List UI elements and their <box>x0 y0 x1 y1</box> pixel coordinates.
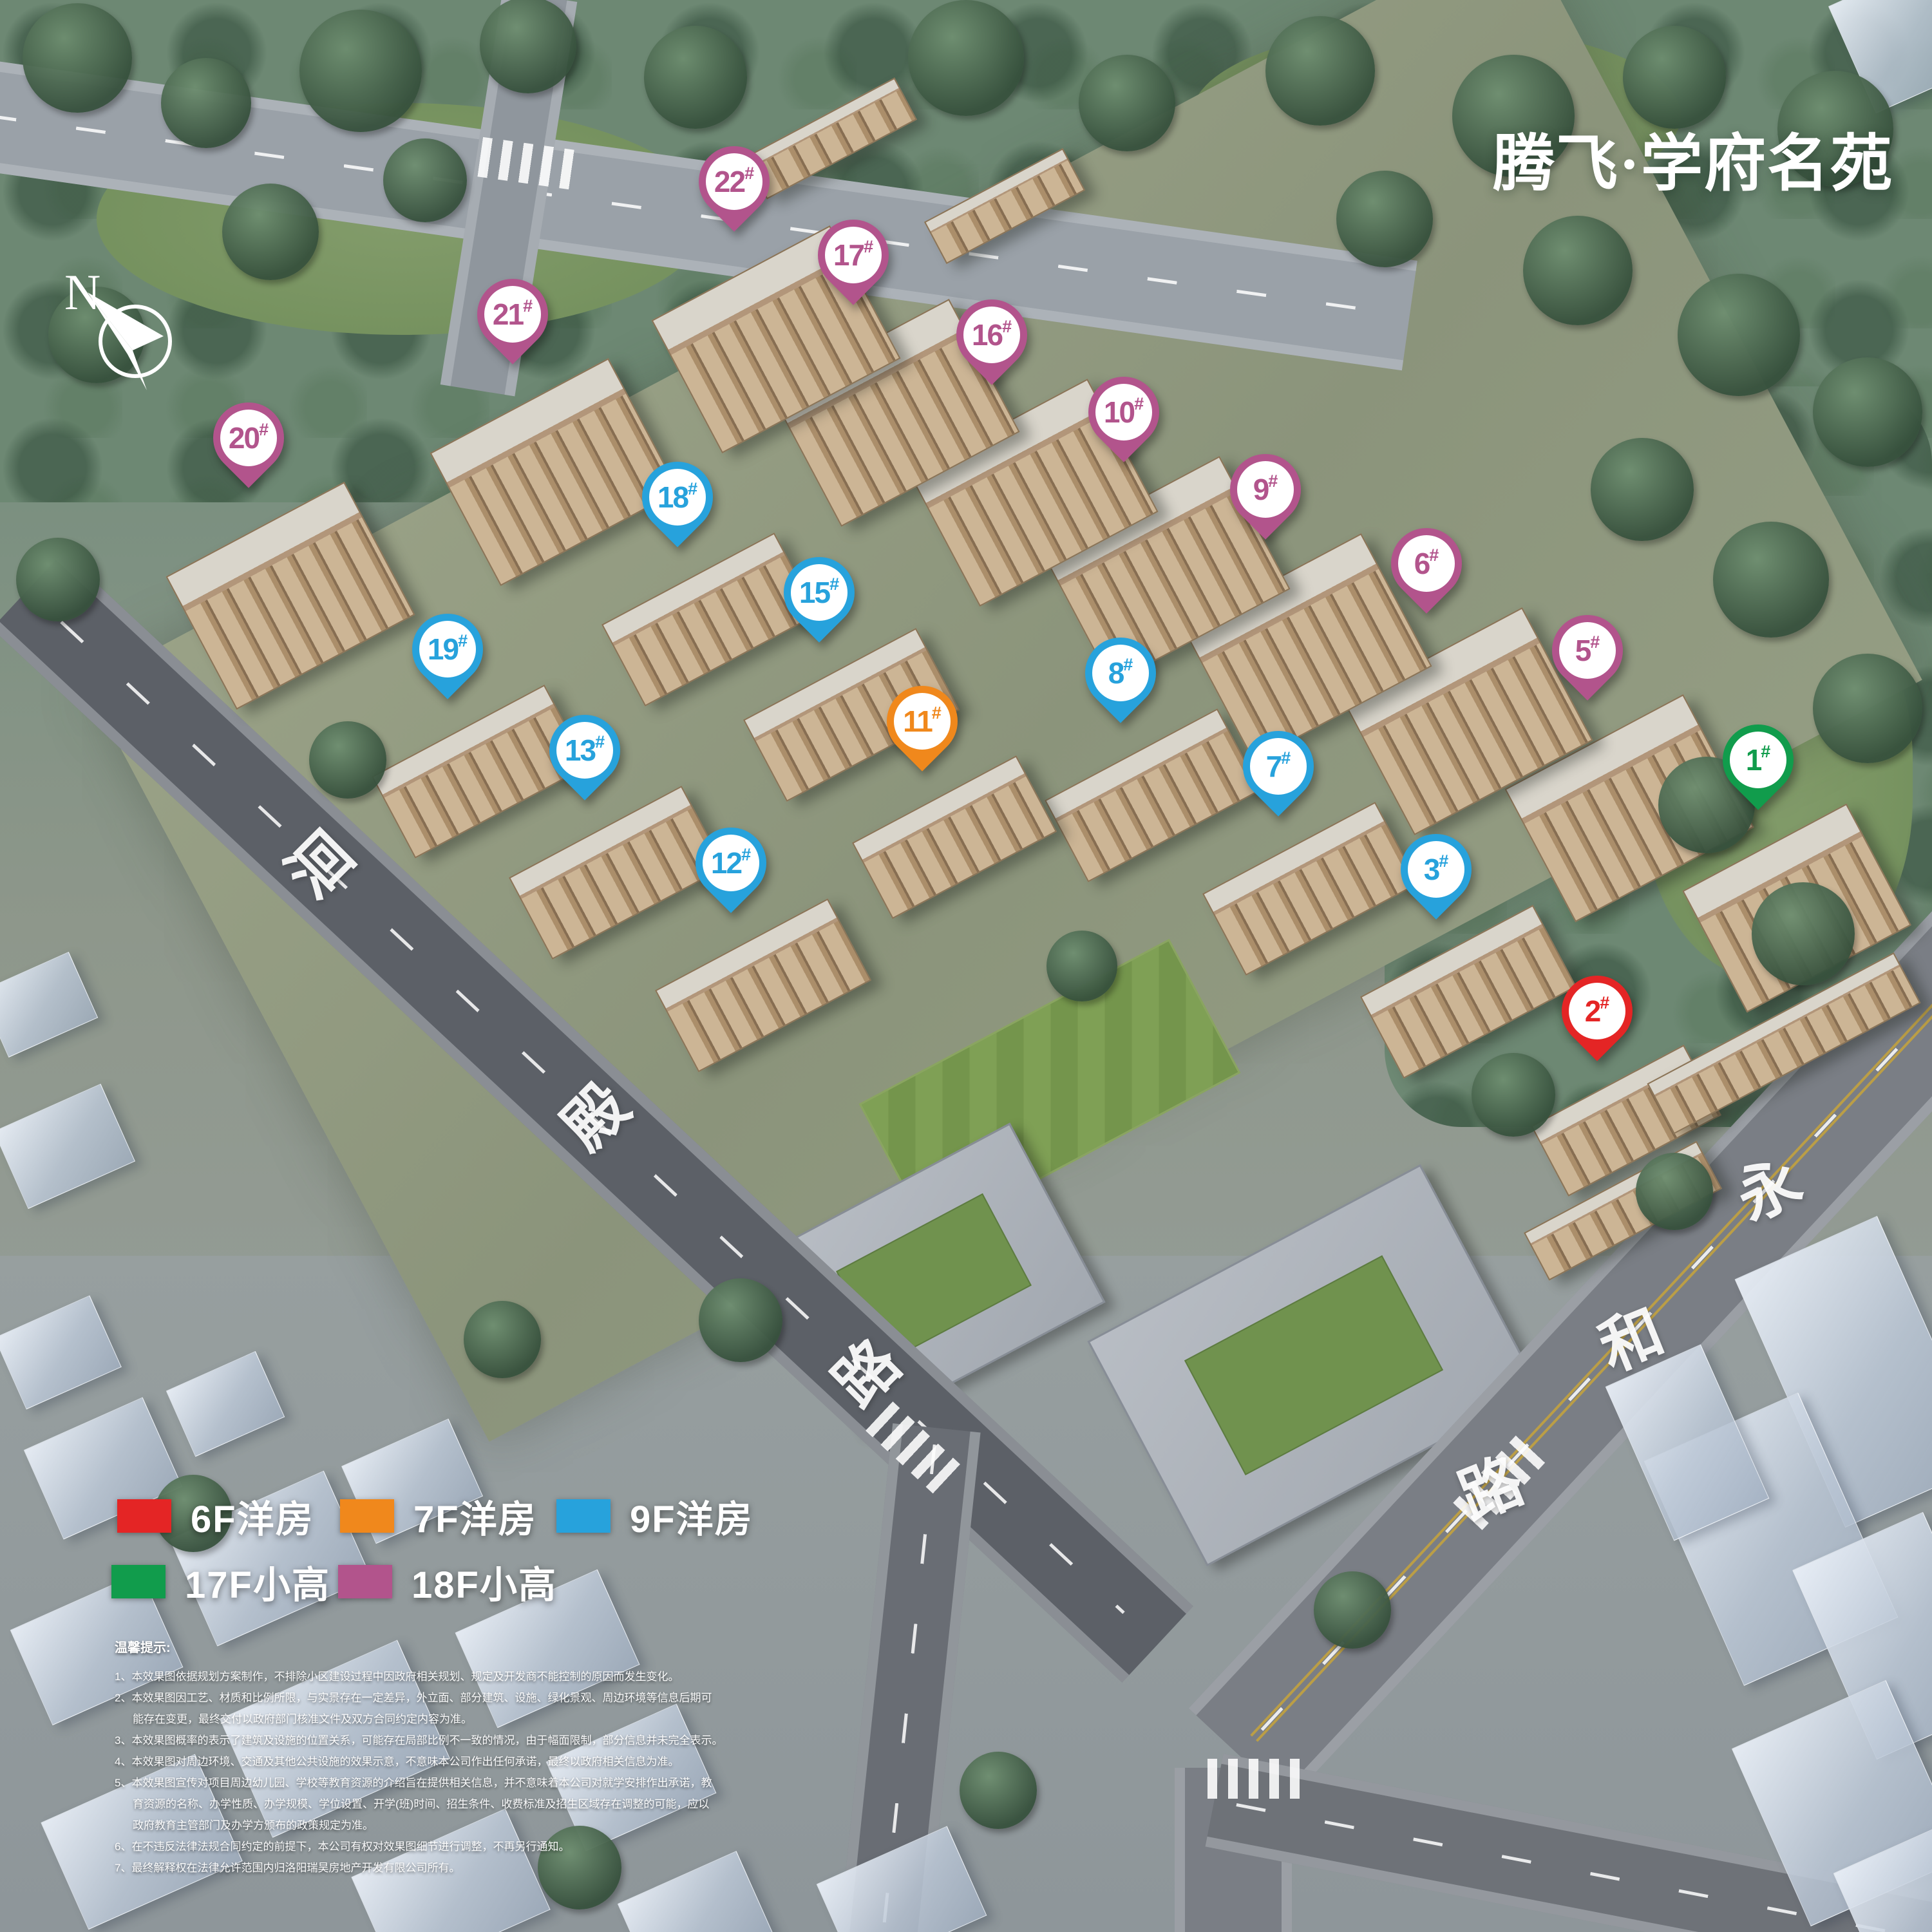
legend-item-18F小高: 18F小高 <box>338 1555 557 1609</box>
tree <box>1813 654 1922 763</box>
tree <box>644 26 747 129</box>
pin-label: 5# <box>1559 622 1616 679</box>
pin-label: 6# <box>1398 535 1455 592</box>
building-pin-3[interactable]: 3# <box>1401 834 1472 905</box>
disclaimer-line: 5、本效果图宣传对项目周边幼儿园、学校等教育资源的介绍旨在提供相关信息，并不意味… <box>115 1772 723 1794</box>
legend-item-9F洋房: 9F洋房 <box>556 1489 753 1543</box>
legend-label: 18F小高 <box>412 1555 557 1609</box>
tree <box>1336 171 1433 267</box>
legend-swatch <box>111 1565 166 1598</box>
tree <box>960 1752 1037 1829</box>
tree <box>1713 522 1829 638</box>
disclaimer-lines: 1、本效果图依据规划方案制作，不排除小区建设过程中因政府相关规划、规定及开发商不… <box>115 1666 723 1879</box>
pin-label: 22# <box>706 153 762 210</box>
pin-label: 3# <box>1408 841 1464 898</box>
tree <box>464 1301 541 1378</box>
tree <box>1813 357 1922 467</box>
tree <box>1314 1571 1391 1649</box>
pin-label: 21# <box>484 286 541 343</box>
disclaimer-line: 7、最终解释权在法律允许范围内归洛阳瑞昊房地产开发有限公司所有。 <box>115 1857 723 1879</box>
pin-label: 17# <box>825 227 882 283</box>
legend-label: 7F洋房 <box>413 1489 537 1543</box>
legend-swatch <box>556 1499 611 1533</box>
pin-label: 1# <box>1730 732 1786 788</box>
building-pin-21[interactable]: 21# <box>477 279 548 350</box>
building-pin-17[interactable]: 17# <box>818 220 889 290</box>
tree <box>480 0 576 93</box>
pin-label: 12# <box>703 835 759 891</box>
tree <box>908 0 1024 116</box>
disclaimer-line: 1、本效果图依据规划方案制作，不排除小区建设过程中因政府相关规划、规定及开发商不… <box>115 1666 723 1687</box>
compass: N <box>45 252 206 417</box>
building-pin-16[interactable]: 16# <box>956 299 1027 370</box>
disclaimer-line: 4、本效果图对周边环境、交通及其他公共设施的效果示意，不意味本公司作出任何承诺，… <box>115 1751 723 1772</box>
building-pin-19[interactable]: 19# <box>412 614 483 685</box>
building-pin-8[interactable]: 8# <box>1085 638 1156 708</box>
tree <box>309 721 386 799</box>
building-pin-11[interactable]: 11# <box>887 686 958 757</box>
masterplan-rendering: 洄殿路永和路 1#2#3#5#6#7#8#9#10#11#12#13#15#16… <box>0 0 1932 1932</box>
disclaimer-line: 2、本效果图因工艺、材质和比例所限，与实景存在一定差异，外立面、部分建筑、设施、… <box>115 1687 723 1709</box>
crosswalk <box>1207 1759 1304 1799</box>
building-pin-7[interactable]: 7# <box>1243 731 1314 802</box>
tree <box>1079 55 1175 151</box>
pin-label: 15# <box>791 564 848 621</box>
tree <box>299 10 422 132</box>
pin-label: 9# <box>1237 461 1294 518</box>
building-pin-22[interactable]: 22# <box>699 146 770 217</box>
tree <box>1678 274 1800 396</box>
legend-swatch <box>338 1565 392 1598</box>
building-pin-12[interactable]: 12# <box>696 828 766 898</box>
pin-label: 20# <box>220 410 277 466</box>
pin-label: 11# <box>894 693 951 750</box>
legend-swatch <box>117 1499 171 1533</box>
tree <box>222 184 319 280</box>
tree <box>161 58 251 148</box>
building-pin-20[interactable]: 20# <box>213 402 284 473</box>
surrounding-building <box>0 1084 135 1209</box>
legend-label: 6F洋房 <box>191 1489 314 1543</box>
building-pin-2[interactable]: 2# <box>1562 976 1633 1046</box>
building-pin-1[interactable]: 1# <box>1723 724 1794 795</box>
building-pin-9[interactable]: 9# <box>1230 454 1301 525</box>
legend-item-7F洋房: 7F洋房 <box>340 1489 537 1543</box>
disclaimer-line: 6、在不违反法律法规合同约定的前提下，本公司有权对效果图细节进行调整，不再另行通… <box>115 1836 723 1857</box>
disclaimer-heading: 温馨提示: <box>115 1637 723 1656</box>
pin-label: 13# <box>556 722 613 779</box>
compass-arrow-icon: N <box>45 252 206 413</box>
disclaimer: 温馨提示: 1、本效果图依据规划方案制作，不排除小区建设过程中因政府相关规划、规… <box>115 1637 723 1879</box>
tree <box>1752 882 1855 985</box>
disclaimer-line: 政府教育主管部门及办学方颁布的政策规定为准。 <box>115 1815 723 1836</box>
compass-north-letter: N <box>64 264 100 320</box>
pin-label: 19# <box>419 621 476 677</box>
legend-item-6F洋房: 6F洋房 <box>117 1489 314 1543</box>
building-pin-15[interactable]: 15# <box>784 557 855 628</box>
tree <box>1046 931 1117 1001</box>
tree <box>23 3 132 113</box>
building-pin-13[interactable]: 13# <box>549 715 620 786</box>
pin-label: 10# <box>1095 384 1152 440</box>
legend: 6F洋房7F洋房9F洋房17F小高18F小高 <box>97 1481 805 1610</box>
tree <box>1591 438 1694 541</box>
tree <box>16 538 100 621</box>
legend-item-17F小高: 17F小高 <box>111 1555 330 1609</box>
school-courtyard <box>1184 1255 1443 1475</box>
tree <box>1265 16 1375 126</box>
pin-label: 7# <box>1250 738 1307 795</box>
building-pin-18[interactable]: 18# <box>642 462 713 533</box>
tree <box>1523 216 1633 325</box>
pin-label: 16# <box>963 307 1020 363</box>
pin-label: 2# <box>1569 983 1625 1039</box>
tree <box>1472 1053 1555 1137</box>
tree <box>1636 1153 1713 1230</box>
disclaimer-line: 育资源的名称、办学性质、办学规模、学位设置、开学(班)时间、招生条件、收费标准及… <box>115 1794 723 1815</box>
disclaimer-line: 能存在变更，最终交付以政府部门核准文件及双方合同约定内容为准。 <box>115 1709 723 1730</box>
building-pin-10[interactable]: 10# <box>1088 377 1159 448</box>
legend-label: 9F洋房 <box>630 1489 753 1543</box>
tree <box>699 1278 782 1362</box>
building-pin-5[interactable]: 5# <box>1552 615 1623 686</box>
building-pin-6[interactable]: 6# <box>1391 528 1462 599</box>
pin-label: 8# <box>1092 645 1149 701</box>
legend-swatch <box>340 1499 394 1533</box>
project-title: 腾飞·学府名苑 <box>1493 113 1893 203</box>
tree <box>383 138 467 222</box>
surrounding-building <box>0 952 98 1057</box>
disclaimer-line: 3、本效果图概率的表示了建筑及设施的位置关系，可能存在局部比例不一致的情况，由于… <box>115 1730 723 1751</box>
pin-label: 18# <box>649 469 706 526</box>
legend-label: 17F小高 <box>185 1555 330 1609</box>
